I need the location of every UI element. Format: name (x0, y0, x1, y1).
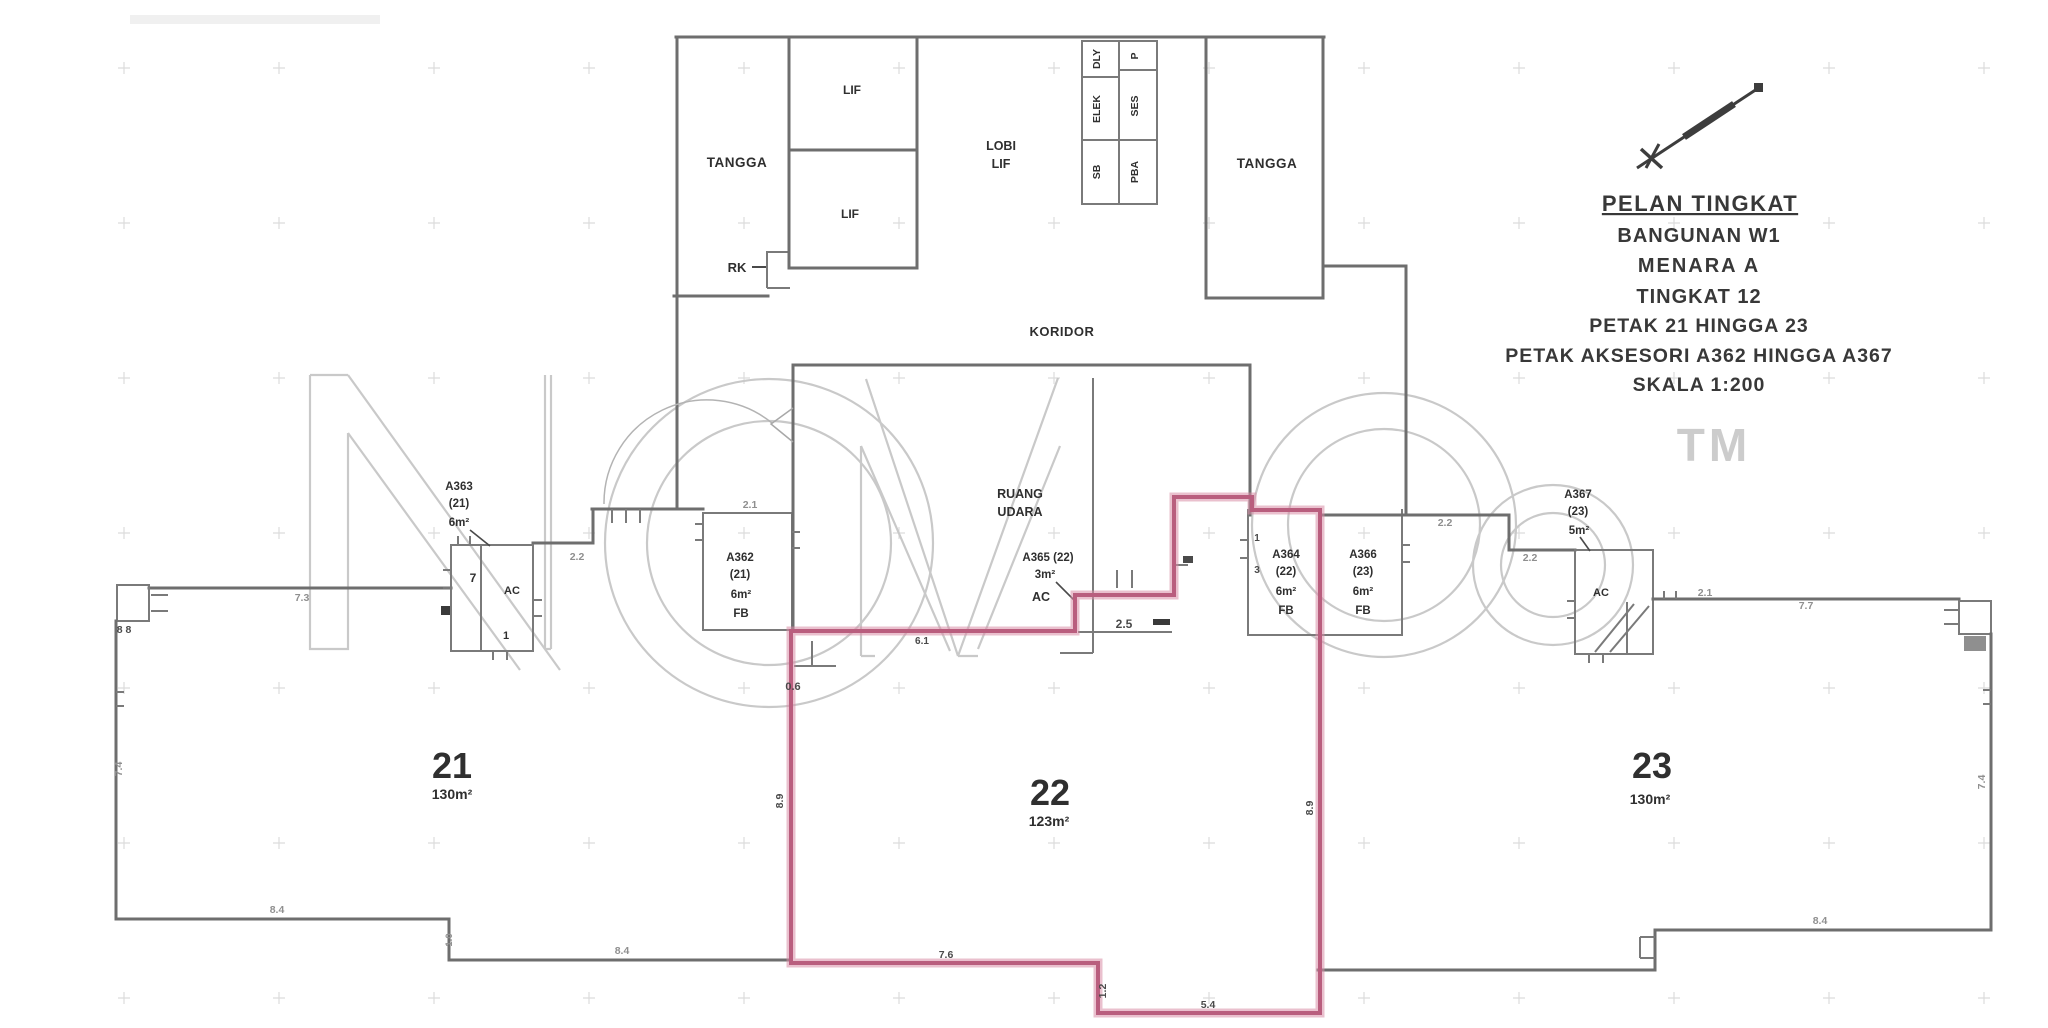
svg-text:LIF: LIF (992, 157, 1011, 171)
svg-text:FB: FB (1278, 605, 1293, 617)
svg-text:KORIDOR: KORIDOR (1030, 324, 1095, 339)
svg-text:DLY: DLY (1091, 49, 1103, 69)
svg-text:FB: FB (1355, 605, 1370, 617)
svg-text:RK: RK (728, 260, 747, 275)
svg-text:MENARA A: MENARA A (1638, 255, 1760, 277)
svg-text:3m²: 3m² (1035, 569, 1056, 581)
svg-text:21: 21 (432, 745, 472, 786)
svg-text:1: 1 (1254, 533, 1260, 544)
svg-text:6m²: 6m² (1353, 586, 1374, 598)
svg-text:130m²: 130m² (432, 786, 473, 802)
svg-text:0.6: 0.6 (785, 681, 800, 693)
svg-text:7.4: 7.4 (113, 762, 125, 777)
svg-text:8.4: 8.4 (615, 945, 630, 957)
svg-text:8.4: 8.4 (270, 904, 285, 916)
svg-text:SES: SES (1129, 95, 1141, 116)
svg-text:2.1: 2.1 (1698, 587, 1713, 599)
svg-text:AC: AC (1032, 590, 1050, 604)
svg-text:7.3: 7.3 (295, 592, 310, 604)
svg-text:1.2: 1.2 (1097, 984, 1109, 999)
svg-text:PELAN TINGKAT: PELAN TINGKAT (1602, 191, 1798, 216)
svg-text:123m²: 123m² (1029, 813, 1070, 829)
svg-text:P: P (1129, 52, 1141, 59)
svg-text:23: 23 (1632, 745, 1672, 786)
svg-text:TANGGA: TANGGA (707, 155, 768, 170)
svg-text:A363: A363 (445, 481, 473, 493)
svg-text:8.9: 8.9 (774, 794, 786, 809)
svg-text:(21): (21) (730, 569, 751, 581)
svg-text:6m²: 6m² (731, 589, 752, 601)
svg-text:AC: AC (504, 585, 520, 597)
svg-text:8.9: 8.9 (1304, 801, 1316, 816)
svg-text:LIF: LIF (841, 207, 859, 221)
svg-text:LIF: LIF (843, 83, 861, 97)
svg-text:(23): (23) (1353, 566, 1374, 578)
svg-text:A365 (22): A365 (22) (1022, 552, 1073, 564)
svg-text:6m²: 6m² (449, 517, 470, 529)
svg-text:2.2: 2.2 (1438, 517, 1453, 529)
svg-text:A366: A366 (1349, 549, 1377, 561)
svg-text:SKALA 1:200: SKALA 1:200 (1633, 374, 1766, 396)
svg-text:PETAK AKSESORI A362 HINGGA A36: PETAK AKSESORI A362 HINGGA A367 (1505, 345, 1893, 367)
svg-text:LOBI: LOBI (986, 139, 1016, 153)
svg-text:8.4: 8.4 (1813, 915, 1828, 927)
svg-text:TM: TM (1677, 419, 1751, 471)
svg-text:A367: A367 (1564, 489, 1592, 501)
svg-text:BANGUNAN W1: BANGUNAN W1 (1617, 225, 1780, 247)
svg-text:SB: SB (1091, 164, 1103, 179)
svg-text:130m²: 130m² (1630, 791, 1671, 807)
svg-text:7: 7 (470, 571, 477, 585)
svg-text:1.0: 1.0 (444, 933, 455, 946)
svg-text:7.6: 7.6 (939, 949, 954, 961)
svg-text:ELEK: ELEK (1091, 95, 1103, 123)
svg-text:TANGGA: TANGGA (1237, 156, 1298, 171)
svg-text:2.1: 2.1 (743, 499, 758, 511)
svg-text:6m²: 6m² (1276, 586, 1297, 598)
svg-text:PBA: PBA (1129, 160, 1141, 183)
svg-text:(22): (22) (1276, 566, 1297, 578)
svg-text:1: 1 (503, 630, 509, 642)
svg-text:22: 22 (1030, 772, 1070, 813)
svg-text:2.2: 2.2 (1523, 552, 1538, 564)
svg-text:5.4: 5.4 (1201, 999, 1216, 1011)
svg-text:3: 3 (1254, 565, 1260, 576)
svg-text:5m²: 5m² (1569, 525, 1590, 537)
svg-text:2.5: 2.5 (1116, 617, 1133, 631)
svg-text:(21): (21) (449, 498, 470, 510)
svg-text:AC: AC (1593, 587, 1609, 599)
svg-text:A364: A364 (1272, 549, 1300, 561)
svg-text:FB: FB (733, 608, 748, 620)
svg-text:7.7: 7.7 (1799, 600, 1814, 612)
svg-text:(23): (23) (1568, 506, 1589, 518)
svg-text:A362: A362 (726, 552, 754, 564)
svg-text:8 8: 8 8 (117, 624, 132, 636)
svg-text:2.2: 2.2 (570, 551, 585, 563)
svg-text:TINGKAT 12: TINGKAT 12 (1636, 286, 1761, 308)
svg-text:6.1: 6.1 (915, 636, 929, 647)
svg-text:RUANG: RUANG (997, 487, 1043, 501)
svg-text:UDARA: UDARA (997, 505, 1042, 519)
svg-text:7.4: 7.4 (1976, 775, 1988, 790)
svg-text:PETAK 21 HINGGA 23: PETAK 21 HINGGA 23 (1589, 315, 1809, 337)
